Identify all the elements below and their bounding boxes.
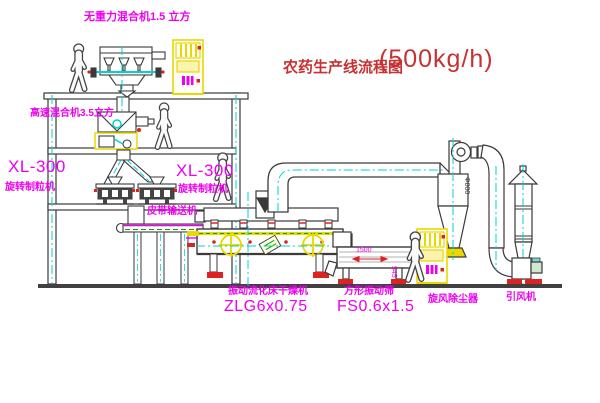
dryer-feet xyxy=(207,254,329,278)
control-cabinet-roof xyxy=(173,40,203,94)
induced-draft-fan xyxy=(507,258,542,284)
vibrating-screen xyxy=(325,232,413,284)
dryer-spring xyxy=(240,220,247,228)
person-figure-2f xyxy=(158,103,170,147)
label-high-speed-mixer: 高速混合机3.5立方 xyxy=(30,109,114,119)
label-fan: 引风机 xyxy=(506,293,536,303)
label-screen-name: 方形振动筛 xyxy=(344,287,394,297)
label-granulator-mid-name: 旋转制粒机 xyxy=(178,185,228,195)
dryer-spring xyxy=(211,220,218,228)
mixer-drop-duct xyxy=(117,97,129,112)
dryer-spring xyxy=(299,220,306,228)
label-belt-conveyor: 皮带输送机 xyxy=(147,207,197,217)
granulator-right xyxy=(136,177,177,204)
granulator-left xyxy=(94,177,135,204)
dryer-spring xyxy=(325,220,332,228)
flow-diagram-page: 农药生产线流程图 (500kg/h) 无重力混合机1.5 立方 高速混合机3.5… xyxy=(0,0,600,403)
conveyor-legs xyxy=(134,232,188,284)
dryer-spring xyxy=(268,220,275,228)
dimension-screen-height: 545 xyxy=(390,266,397,278)
label-granulator-mid-model: XL-300 xyxy=(176,162,234,179)
label-granulator-left-name: 旋转制粒机 xyxy=(5,183,55,193)
dimension-cyclone-diameter: Φ800 xyxy=(463,177,470,194)
person-figure-roof xyxy=(72,44,85,90)
label-screen-model: FS0.6x1.5 xyxy=(337,299,414,315)
page-title-capacity: (500kg/h) xyxy=(379,45,494,74)
discharge-chute xyxy=(128,206,144,224)
gravity-free-mixer xyxy=(87,47,165,97)
label-cyclone: 旋风除尘器 xyxy=(428,295,478,305)
downcomer-duct xyxy=(481,145,504,248)
label-granulator-left-model: XL-300 xyxy=(8,158,66,175)
label-gravity-free-mixer: 无重力混合机1.5 立方 xyxy=(84,12,190,23)
dimension-screen-width: 1500 xyxy=(356,247,372,254)
label-dryer-name: 振动流化床干燥机 xyxy=(228,287,308,297)
label-dryer-model: ZLG6x0.75 xyxy=(224,299,308,315)
person-figure-ground xyxy=(408,232,421,280)
